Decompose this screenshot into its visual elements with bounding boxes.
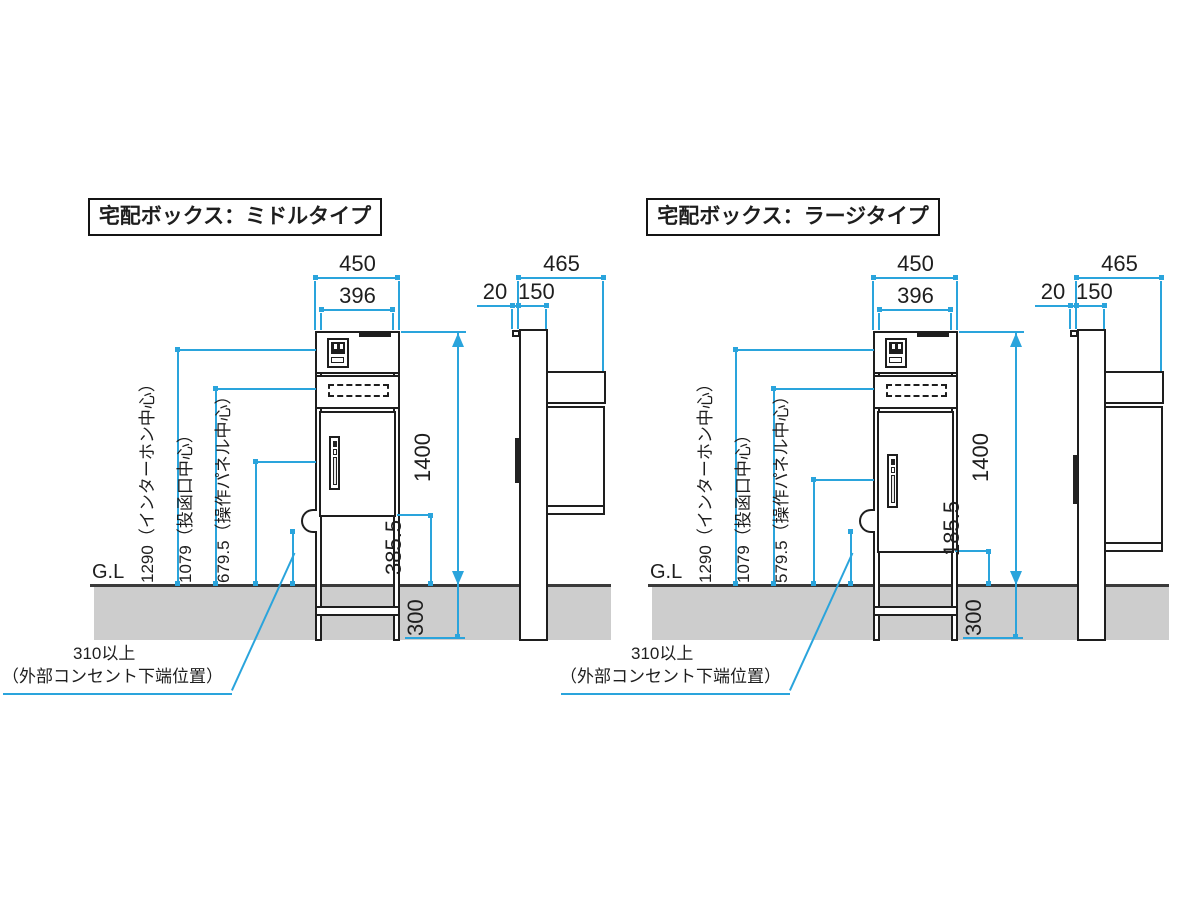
underground-crossbar bbox=[873, 606, 958, 616]
dim-endpoint bbox=[811, 581, 816, 586]
dim-endpoint bbox=[428, 581, 433, 586]
dim-extension bbox=[405, 637, 465, 639]
diagram-delivery-box-large: 宅配ボックス：ラージタイプ G.L 450 396 465 bbox=[558, 0, 1200, 900]
dim-450-line bbox=[315, 277, 400, 279]
outlet-note-line1: 310以上 bbox=[73, 644, 135, 664]
dim-endpoint bbox=[253, 459, 258, 464]
dim-extension bbox=[401, 331, 466, 333]
dim-extension bbox=[950, 313, 952, 330]
dim-endpoint bbox=[290, 581, 295, 586]
dim-1079-label: 1079（投函口中心） bbox=[735, 426, 752, 583]
dim-1400-value: 1400 bbox=[412, 433, 434, 482]
diagram-title: 宅配ボックス：ラージタイプ bbox=[657, 205, 929, 228]
dim-extension bbox=[545, 309, 547, 329]
side-post bbox=[519, 329, 548, 641]
mail-slot-dashed bbox=[886, 384, 947, 397]
dim-300-line bbox=[457, 586, 459, 639]
dim-extension bbox=[517, 309, 519, 329]
dim-1290-tick bbox=[177, 349, 316, 351]
dim-extension bbox=[314, 281, 316, 330]
dim-1400-line bbox=[457, 332, 459, 586]
dim-extension bbox=[1103, 309, 1105, 329]
dim-endpoint bbox=[175, 347, 180, 352]
dim-panel-line bbox=[813, 479, 815, 586]
dim-1290-tick bbox=[735, 349, 874, 351]
dim-door-bottom-value: 385.5 bbox=[383, 520, 405, 575]
dim-panel-tick bbox=[255, 461, 316, 463]
dim-20-value: 20 bbox=[479, 280, 511, 304]
dim-endpoint bbox=[848, 581, 853, 586]
mail-slot-dashed bbox=[328, 384, 389, 397]
dim-150-value: 150 bbox=[518, 280, 552, 304]
top-slit bbox=[359, 332, 391, 337]
intercom-lens-icon bbox=[334, 344, 337, 349]
outlet-note-line1: 310以上 bbox=[631, 644, 693, 664]
dim-endpoint bbox=[253, 581, 258, 586]
intercom-speaker bbox=[889, 357, 902, 363]
dim-465-value: 465 bbox=[1076, 252, 1163, 276]
dim-endpoint bbox=[848, 529, 853, 534]
dim-396-value: 396 bbox=[879, 284, 952, 308]
handle-button bbox=[333, 449, 337, 455]
side-post bbox=[1077, 329, 1106, 641]
underground-crossbar bbox=[315, 606, 400, 616]
dim-extension bbox=[878, 313, 880, 330]
dim-extension bbox=[392, 313, 394, 330]
title-box: 宅配ボックス：ミドルタイプ bbox=[88, 198, 382, 236]
outlet-note-line2: （外部コンセント下端位置） bbox=[2, 667, 223, 687]
dim-1290-label: 1290（インターホン中心） bbox=[697, 375, 714, 583]
side-cap bbox=[512, 330, 520, 337]
dim-extension bbox=[1160, 281, 1162, 371]
dim-396-line bbox=[321, 309, 394, 311]
intercom-lens-icon bbox=[340, 344, 343, 349]
dim-1400-line bbox=[1015, 332, 1017, 586]
intercom-lens-icon bbox=[898, 344, 901, 349]
arrow-down-icon bbox=[452, 571, 464, 585]
dim-1290-label: 1290（インターホン中心） bbox=[139, 375, 156, 583]
outlet-note-line2: （外部コンセント下端位置） bbox=[560, 667, 781, 687]
dim-1400-value: 1400 bbox=[970, 433, 992, 482]
handle-grip bbox=[891, 475, 895, 503]
handle-grip bbox=[333, 457, 337, 485]
dim-extension bbox=[398, 281, 400, 330]
outlet-cover bbox=[859, 509, 875, 533]
dim-panel-tick bbox=[813, 479, 874, 481]
dim-300-value: 300 bbox=[963, 599, 985, 636]
arrow-up-icon bbox=[452, 333, 464, 347]
dim-extension bbox=[1069, 309, 1071, 329]
arrow-down-icon bbox=[1010, 571, 1022, 585]
dim-396-value: 396 bbox=[321, 284, 394, 308]
dim-450-value: 450 bbox=[315, 252, 400, 276]
leader-underline bbox=[561, 693, 790, 695]
side-box-lip bbox=[1106, 542, 1161, 544]
dim-extension bbox=[1075, 309, 1077, 329]
dim-door-bottom-line bbox=[430, 515, 432, 586]
dim-extension bbox=[963, 637, 1023, 639]
top-slit bbox=[917, 332, 949, 337]
diagram-delivery-box-middle: 宅配ボックス：ミドルタイプ G.L 450 396 465 bbox=[0, 0, 642, 900]
side-panel-strip bbox=[1073, 455, 1078, 504]
title-box: 宅配ボックス：ラージタイプ bbox=[646, 198, 940, 236]
door-handle bbox=[887, 454, 898, 508]
dim-extension bbox=[959, 331, 1024, 333]
dim-panel-line bbox=[255, 461, 257, 586]
dim-panel-label: 679.5（操作パネル中心） bbox=[215, 387, 232, 583]
dim-450-value: 450 bbox=[873, 252, 958, 276]
side-lower-box bbox=[1104, 406, 1163, 552]
intercom-lens-icon bbox=[892, 344, 895, 349]
dim-panel-label: 579.5（操作パネル中心） bbox=[773, 387, 790, 583]
dim-extension bbox=[320, 313, 322, 330]
dim-300-line bbox=[1015, 586, 1017, 639]
side-upper-box bbox=[1104, 371, 1164, 404]
dim-endpoint bbox=[986, 581, 991, 586]
handle-button bbox=[891, 467, 895, 473]
arrow-up-icon bbox=[1010, 333, 1022, 347]
dim-extension bbox=[511, 309, 513, 329]
dim-endpoint bbox=[290, 529, 295, 534]
dim-150-value: 150 bbox=[1076, 280, 1110, 304]
side-cap bbox=[1070, 330, 1078, 337]
leader-underline bbox=[3, 693, 232, 695]
door-handle bbox=[329, 436, 340, 490]
intercom-speaker bbox=[331, 357, 344, 363]
ground-label: G.L bbox=[92, 561, 124, 584]
dim-450-line bbox=[873, 277, 958, 279]
diagram-title: 宅配ボックス：ミドルタイプ bbox=[99, 205, 371, 228]
dim-endpoint bbox=[428, 513, 433, 518]
dim-endpoint bbox=[986, 549, 991, 554]
dim-extension bbox=[956, 281, 958, 330]
dim-300-value: 300 bbox=[405, 599, 427, 636]
dim-endpoint bbox=[811, 477, 816, 482]
ground-label: G.L bbox=[650, 561, 682, 584]
dim-extension bbox=[872, 281, 874, 330]
dim-396-line bbox=[879, 309, 952, 311]
handle-lock-icon bbox=[333, 441, 337, 447]
handle-lock-icon bbox=[891, 459, 895, 465]
outlet-cover bbox=[301, 509, 317, 533]
side-panel-strip bbox=[515, 438, 520, 483]
dim-20-value: 20 bbox=[1037, 280, 1069, 304]
dim-door-bottom-value: 185.5 bbox=[941, 501, 963, 556]
dim-1079-label: 1079（投函口中心） bbox=[177, 426, 194, 583]
dim-endpoint bbox=[733, 347, 738, 352]
